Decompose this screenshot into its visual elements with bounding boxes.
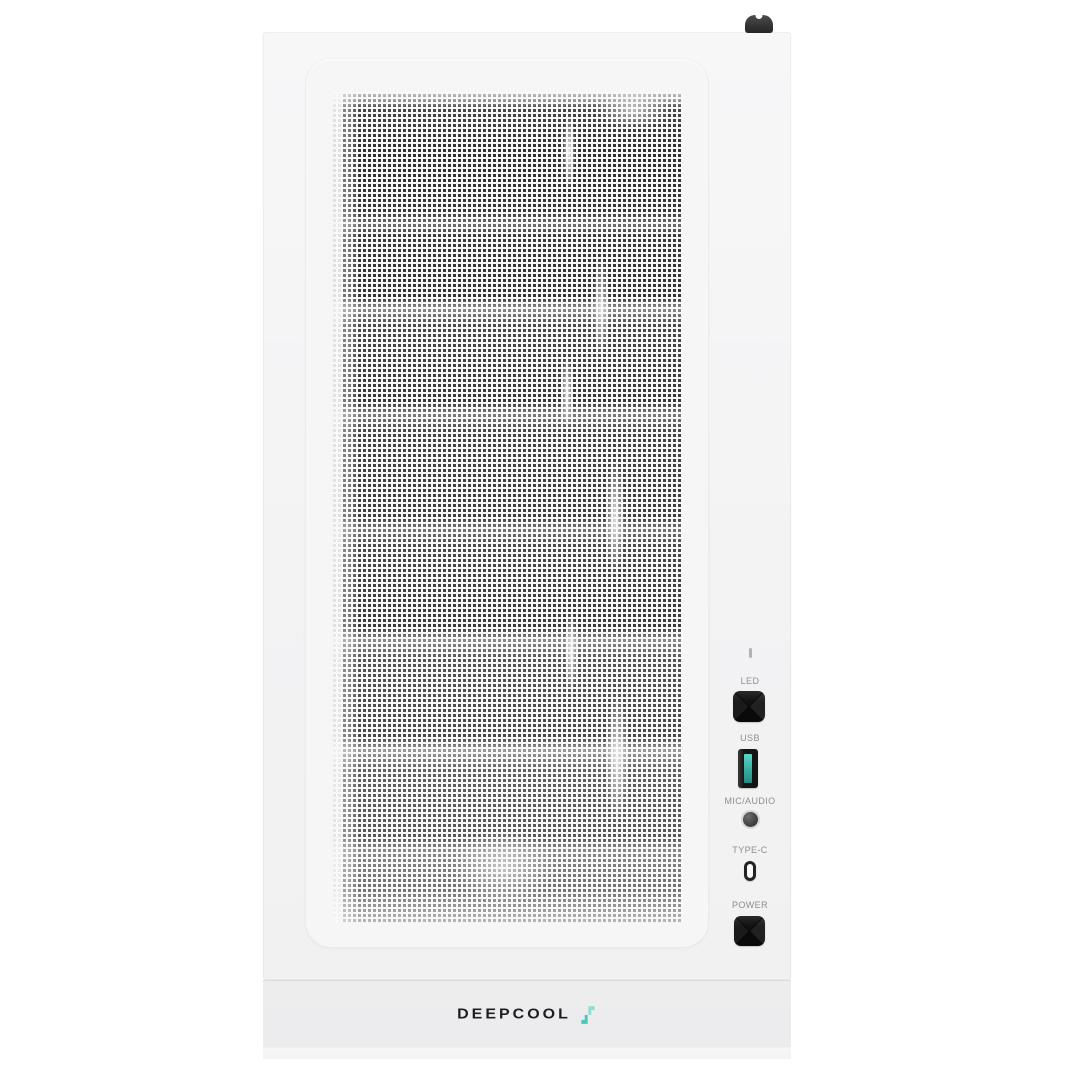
deepcool-glyph-icon (579, 1005, 597, 1025)
led-button[interactable] (733, 691, 765, 722)
led-port-label: LED (710, 676, 790, 686)
mesh-grille (333, 92, 683, 922)
brand-wordmark: DEEPCOOL (457, 1007, 571, 1024)
audio-jack-port[interactable] (743, 812, 758, 827)
usb-c-port[interactable] (744, 861, 756, 881)
mic-audio-port-label: MIC/AUDIO (710, 796, 790, 806)
bottom-front-band: DEEPCOOL (263, 980, 791, 1059)
brand-logo: DEEPCOOL (263, 1005, 791, 1025)
power-port-label: POWER (710, 900, 790, 910)
product-image: LED USB MIC/AUDIO TYPE-C POWER DEEPCOOL (0, 0, 1080, 1080)
indicator-tick-icon (749, 648, 752, 658)
usb-a-port[interactable] (738, 749, 758, 788)
top-latch-knob-icon[interactable] (745, 15, 773, 33)
usb-tongue-icon (744, 754, 752, 783)
usb-port-label: USB (710, 733, 790, 743)
power-button[interactable] (734, 916, 765, 946)
type-c-port-label: TYPE-C (710, 845, 790, 855)
